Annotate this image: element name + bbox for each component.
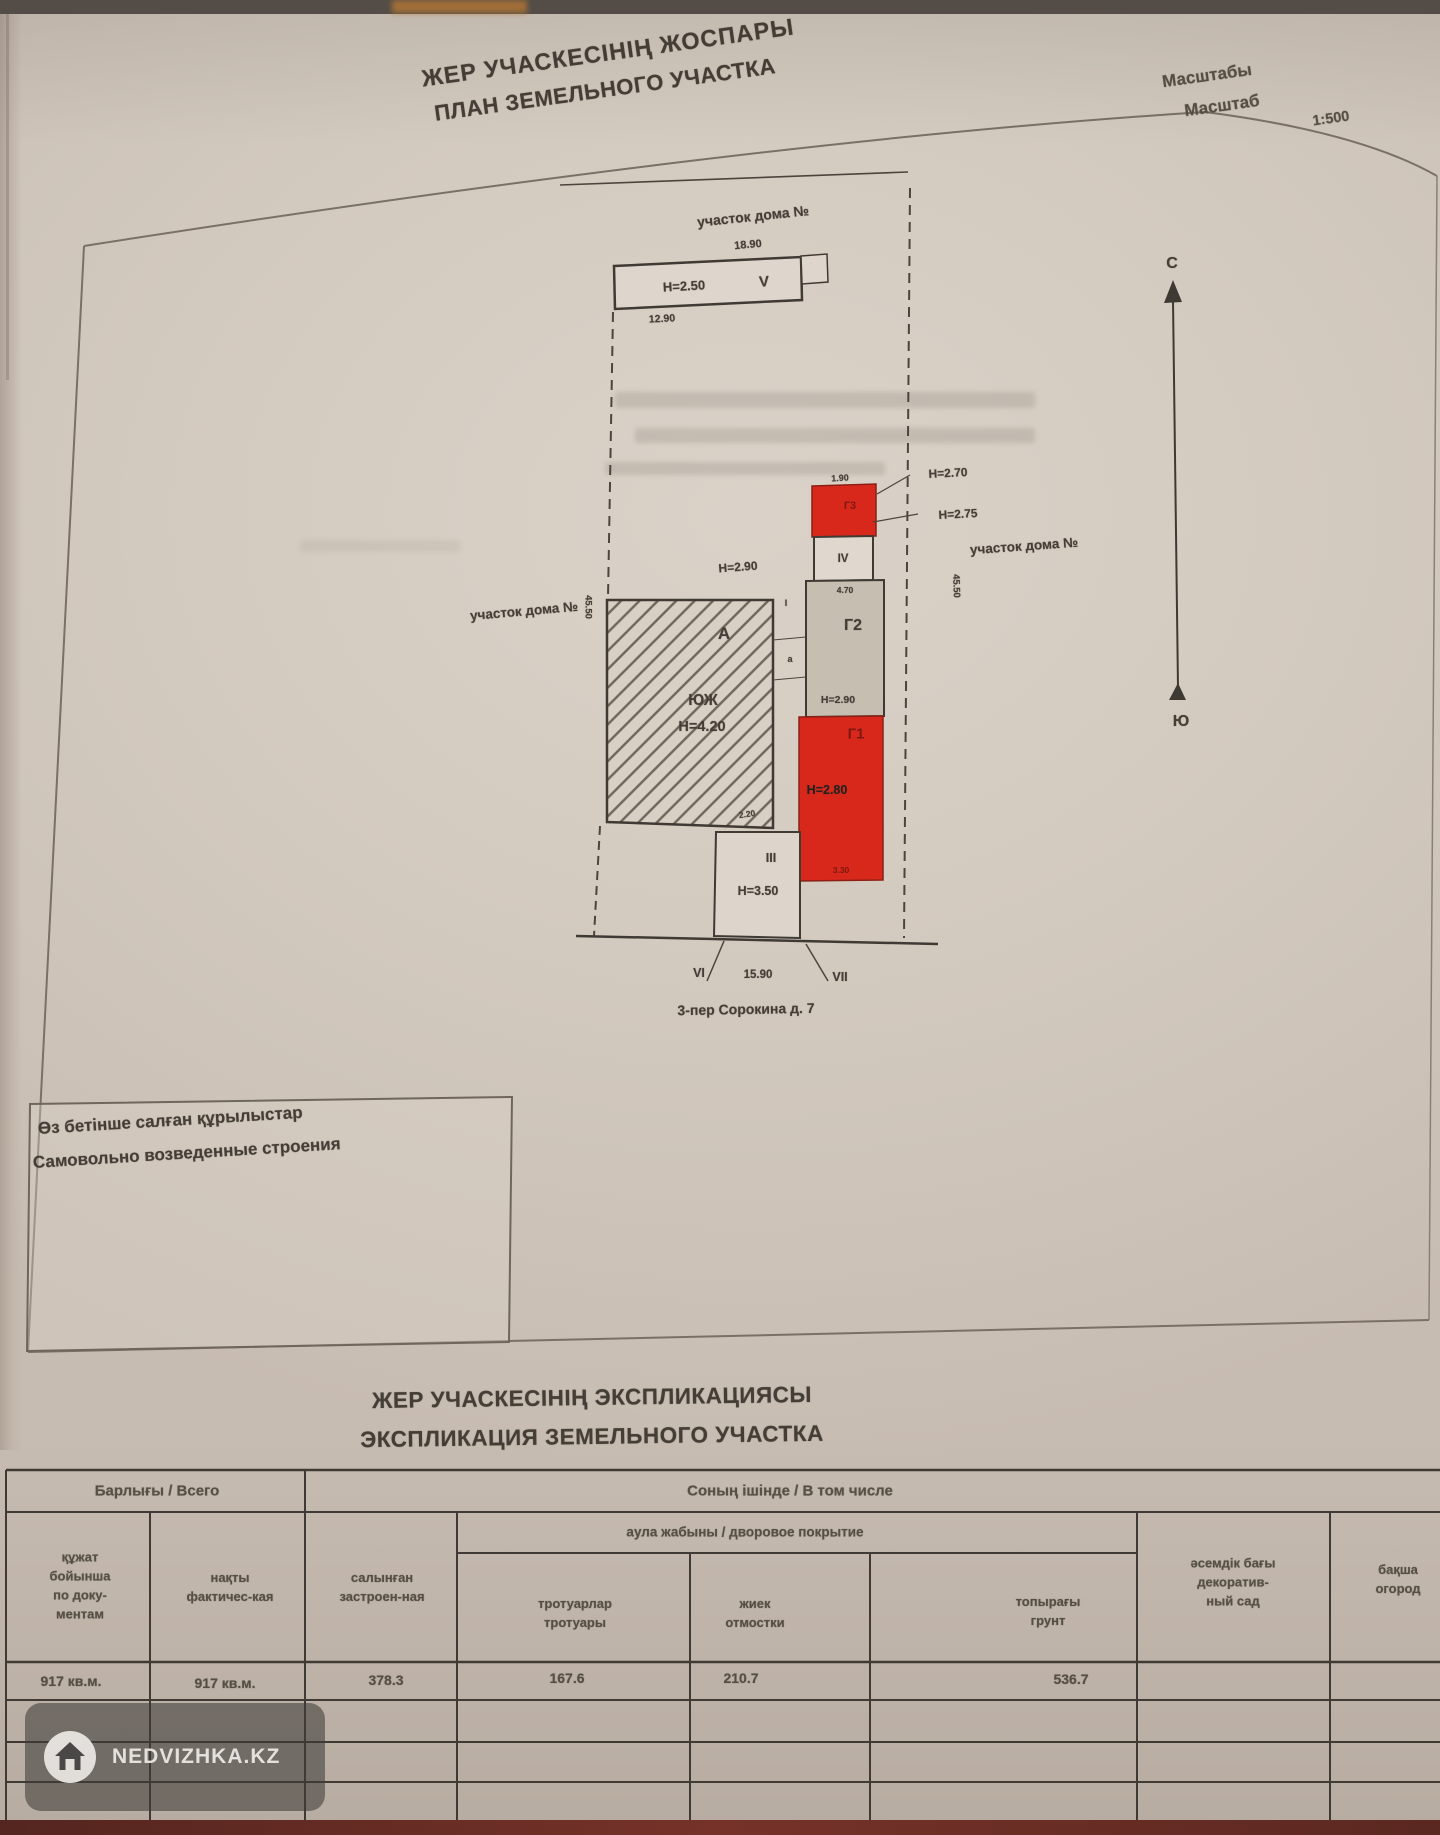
table-group-including: Соның ішінде / В том числе [687, 1483, 893, 1500]
building-g3-label: Г3 [844, 500, 856, 512]
watermark-text: NEDVIZHKA.KZ [112, 1745, 280, 1769]
dimension-right-side: 45.50 [950, 574, 962, 598]
scanned-land-plan-document: ЖЕР УЧАСКЕСІНІҢ ЖОСПАРЫ ПЛАН ЗЕМЕЛЬНОГО … [0, 0, 1440, 1835]
building-v-height: Н=2.50 [662, 277, 705, 294]
dimension-g1: 3.30 [833, 865, 850, 875]
dimension-left-side: 45.50 [583, 595, 594, 619]
compass-north-label: С [1166, 255, 1178, 273]
building-iv-label: IV [838, 553, 849, 565]
table-value-built: 378.3 [368, 1672, 403, 1688]
watermark-badge: NEDVIZHKA.KZ [25, 1703, 325, 1811]
table-group-yard: аула жабыны / дворовое покрытие [626, 1525, 863, 1540]
table-value-sidewalks: 167.6 [549, 1670, 584, 1686]
building-iii-height: Н=3.50 [738, 884, 779, 898]
building-a-height: Н=4.20 [678, 719, 725, 735]
plot-address: 3-пер Сорокина д. 7 [677, 1000, 814, 1018]
height-290-g2: Н=2.90 [821, 694, 855, 706]
dimension-bottom: 15.90 [744, 969, 773, 981]
table-value-soil: 536.7 [1053, 1671, 1088, 1687]
table-col-built: салынған застроен-ная [339, 1569, 424, 1607]
point-vi-label: VI [693, 966, 705, 980]
table-group-total: Барлығы / Всего [95, 1483, 220, 1500]
dimension-v: 12.90 [649, 312, 676, 325]
building-g2-label: Г2 [844, 617, 862, 635]
building-iii-label: III [766, 851, 776, 865]
strip-label-a: а [787, 654, 792, 664]
height-270: Н=2.70 [928, 465, 968, 481]
height-275: Н=2.75 [938, 506, 978, 522]
table-col-kitchen-garden: бақша огород [1375, 1561, 1420, 1599]
building-g1-label: Г1 [848, 726, 865, 743]
building-a-label: А [718, 624, 730, 644]
height-290-top: Н=2.90 [718, 559, 758, 576]
compass-south-label: Ю [1173, 713, 1190, 731]
table-value-fact: 917 кв.м. [195, 1675, 256, 1691]
dimension-top: 18.90 [734, 238, 762, 252]
table-col-blind-area: жиек отмостки [725, 1595, 784, 1633]
table-value-blind-area: 210.7 [723, 1670, 758, 1686]
building-a-material: ЮЖ [688, 692, 718, 710]
table-col-sidewalks: тротуарлар тротуары [538, 1595, 612, 1633]
point-vii-label: VII [832, 970, 847, 984]
table-col-docs: құжат бойынша по доку- ментам [50, 1548, 111, 1623]
building-v-label: V [759, 273, 770, 291]
strip-label-i: I [785, 598, 788, 608]
building-g1-height: Н=2.80 [807, 783, 848, 797]
dimension-g2: 4.70 [837, 585, 854, 595]
table-col-soil: топырағы грунт [1016, 1593, 1081, 1631]
table-col-fact: нақты фактичес-кая [187, 1569, 274, 1607]
table-value-docs: 917 кв.м. [41, 1673, 102, 1689]
home-icon [44, 1731, 96, 1783]
dimension-g3: 1.90 [831, 473, 849, 484]
table-col-garden: әсемдік бағы декоратив- ный сад [1191, 1555, 1276, 1612]
